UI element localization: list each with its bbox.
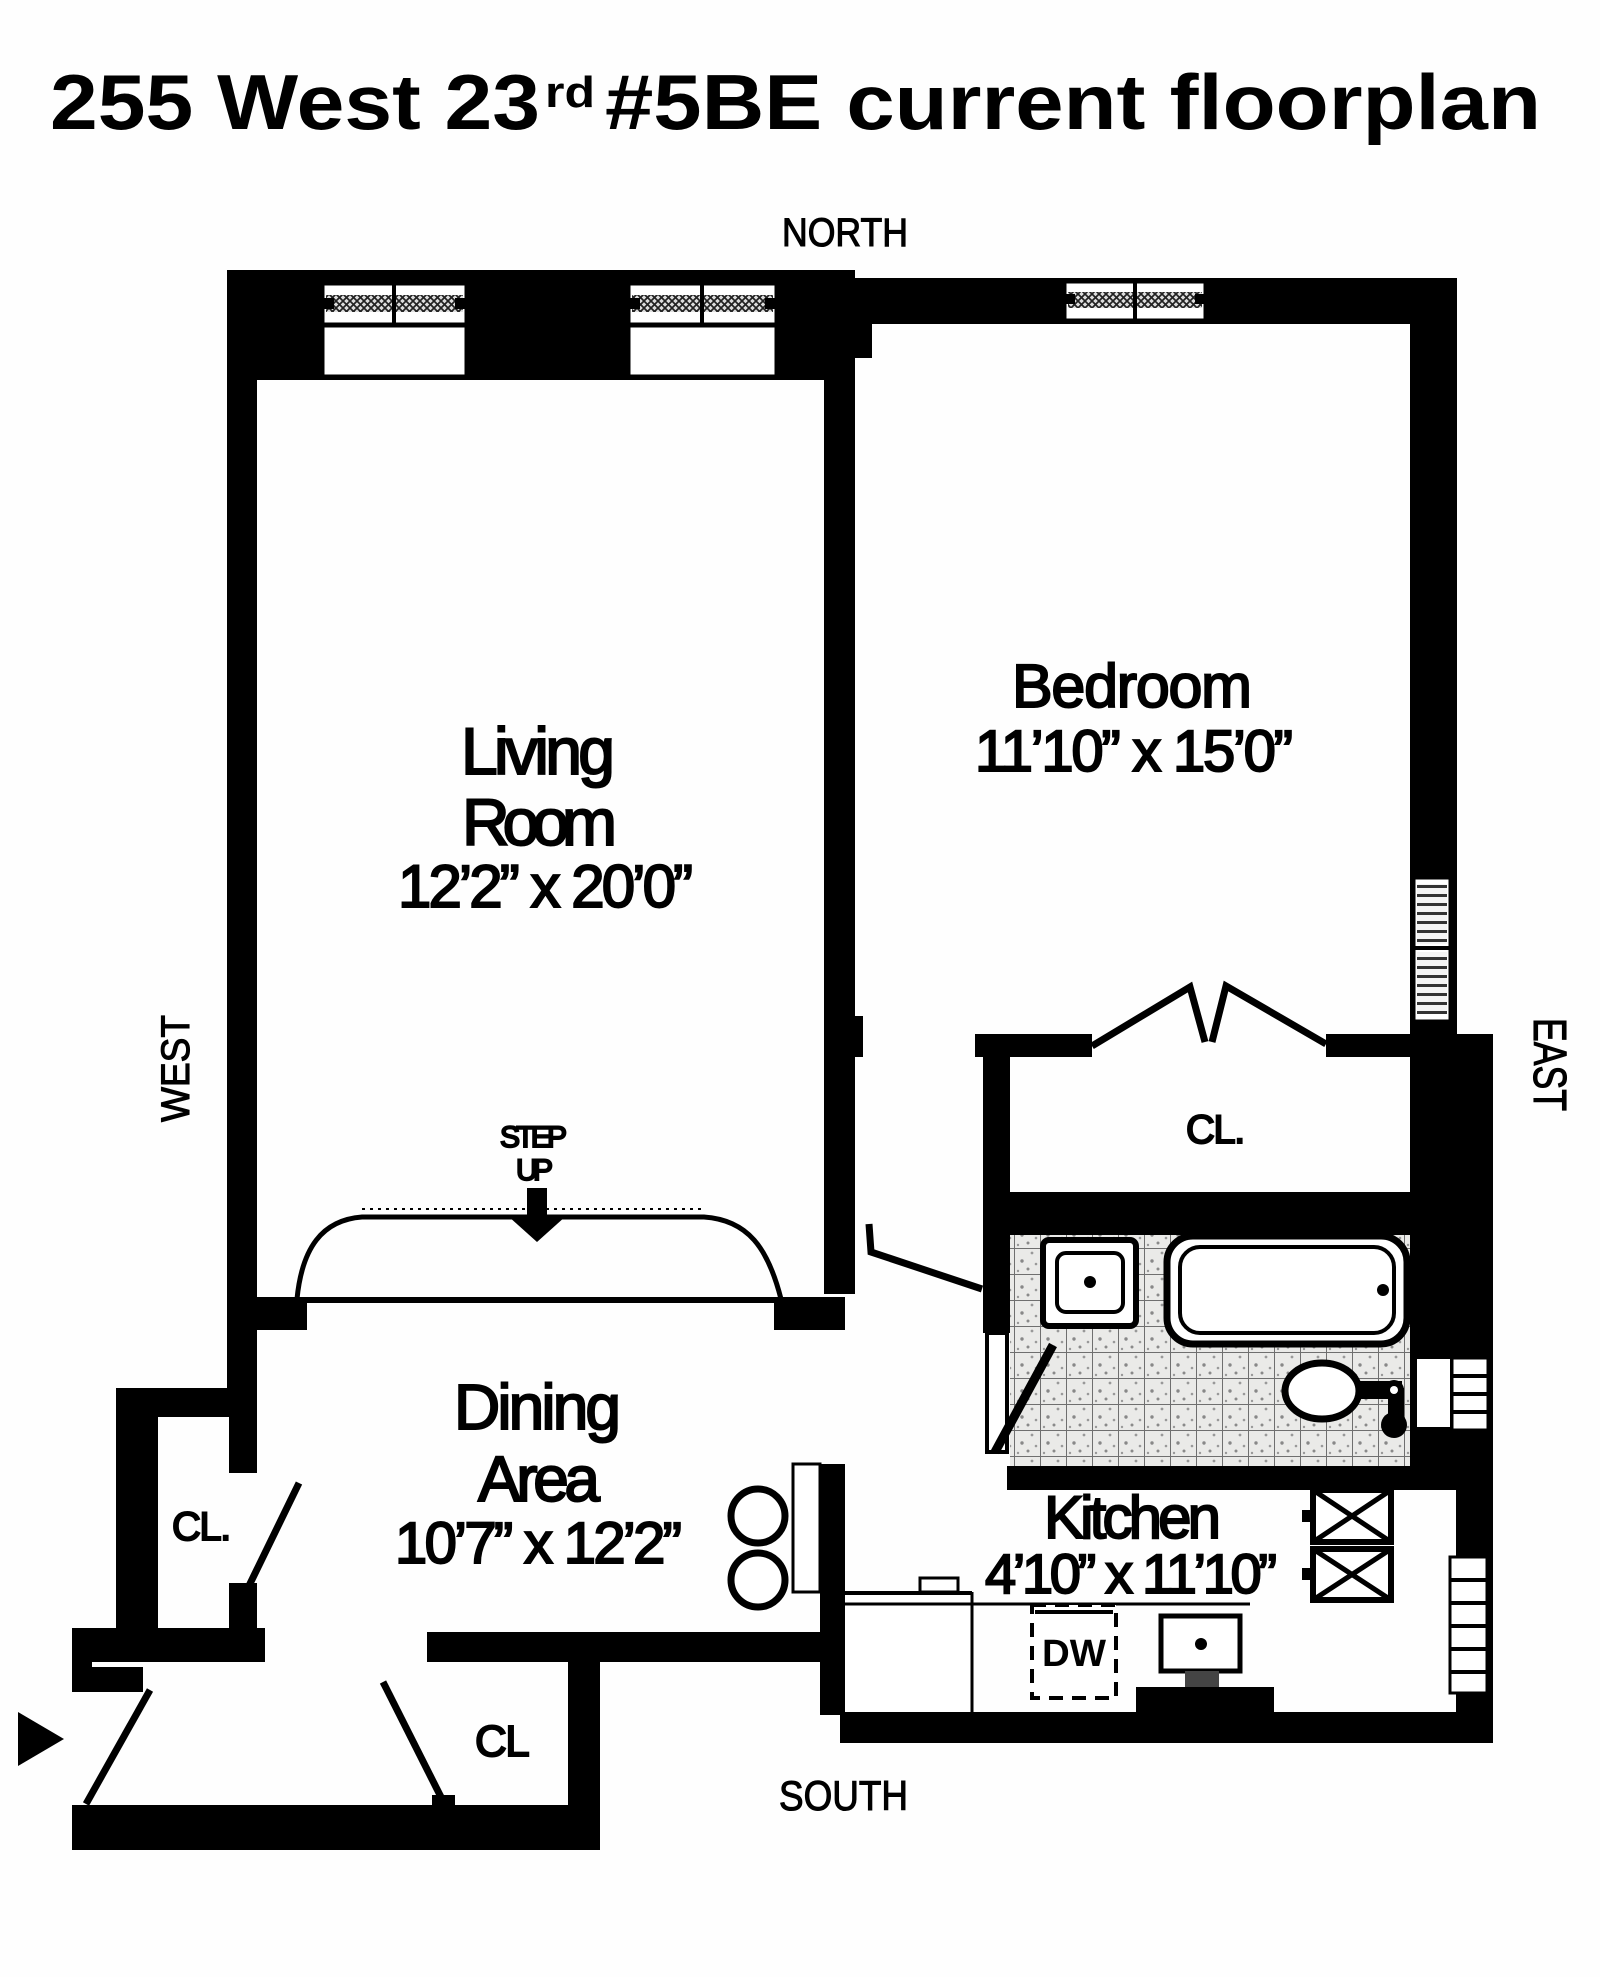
svg-text:CL.: CL. — [1186, 1108, 1244, 1152]
svg-text:NORTH: NORTH — [782, 211, 908, 255]
svg-text:#5BE current floorplan: #5BE current floorplan — [605, 58, 1541, 146]
svg-text:SOUTH: SOUTH — [779, 1772, 908, 1819]
svg-text:255 West 23: 255 West 23 — [50, 58, 540, 146]
svg-text:10’7” x 12’2”: 10’7” x 12’2” — [395, 1511, 682, 1576]
svg-text:Living: Living — [461, 714, 615, 788]
svg-text:4’10” x 11’10”: 4’10” x 11’10” — [985, 1542, 1277, 1605]
svg-text:rd: rd — [545, 68, 595, 117]
svg-text:Room: Room — [462, 785, 617, 859]
svg-text:11’10” x 15’0”: 11’10” x 15’0” — [975, 719, 1293, 784]
svg-text:Bedroom: Bedroom — [1012, 652, 1252, 720]
svg-text:EAST: EAST — [1524, 1018, 1576, 1111]
svg-text:CL: CL — [475, 1717, 529, 1766]
svg-text:12’2” x 20’0”: 12’2” x 20’0” — [398, 853, 693, 920]
svg-text:WEST: WEST — [154, 1015, 198, 1122]
svg-text:DW: DW — [1042, 1633, 1106, 1675]
svg-text:Dining: Dining — [454, 1371, 621, 1443]
svg-text:CL.: CL. — [172, 1505, 230, 1549]
svg-text:STEP: STEP — [500, 1121, 567, 1154]
svg-text:Area: Area — [478, 1443, 600, 1515]
svg-text:Kitchen: Kitchen — [1044, 1484, 1221, 1551]
svg-text:UP: UP — [516, 1154, 553, 1187]
